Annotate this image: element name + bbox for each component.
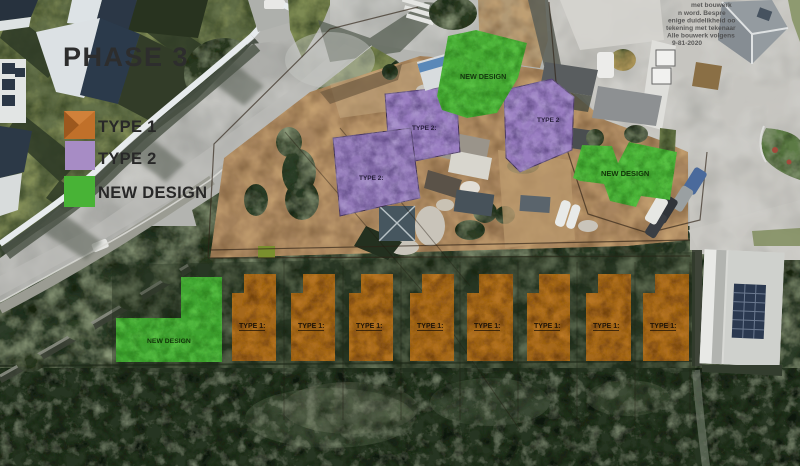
svg-text:NEW DESIGN: NEW DESIGN [147,338,191,345]
svg-text:TYPE 1: TYPE 1 [98,118,157,136]
svg-text:TYPE 2: TYPE 2 [537,117,560,124]
svg-text:TYPE 2: TYPE 2 [98,150,157,168]
svg-text:TYPE 1:: TYPE 1: [593,323,619,330]
svg-text:n word. Bespre: n word. Bespre [678,10,726,17]
svg-text:TYPE 1:: TYPE 1: [298,323,324,330]
svg-text:enige duidelikheid oo: enige duidelikheid oo [668,18,735,25]
svg-text:TYPE 1:: TYPE 1: [239,323,265,330]
svg-text:TYPE 1:: TYPE 1: [650,323,676,330]
svg-text:NEW DESIGN: NEW DESIGN [460,72,506,81]
svg-text:TYPE 1:: TYPE 1: [356,323,382,330]
svg-text:TYPE 1:: TYPE 1: [474,323,500,330]
svg-text:PHASE 3: PHASE 3 [63,42,189,72]
svg-text:TYPE 2:: TYPE 2: [359,175,384,182]
svg-text:NEW DESIGN: NEW DESIGN [98,184,207,202]
svg-text:met bouwerk: met bouwerk [691,2,732,9]
svg-text:TYPE 1:: TYPE 1: [534,323,560,330]
svg-text:tekening met tekenaar: tekening met tekenaar [666,25,736,32]
svg-text:Alle bouwerk volgens: Alle bouwerk volgens [667,33,735,40]
svg-text:9-81-2020: 9-81-2020 [672,40,702,47]
svg-text:TYPE 1:: TYPE 1: [417,323,443,330]
svg-text:NEW DESIGN: NEW DESIGN [601,169,649,178]
svg-text:TYPE 2:: TYPE 2: [412,125,437,132]
